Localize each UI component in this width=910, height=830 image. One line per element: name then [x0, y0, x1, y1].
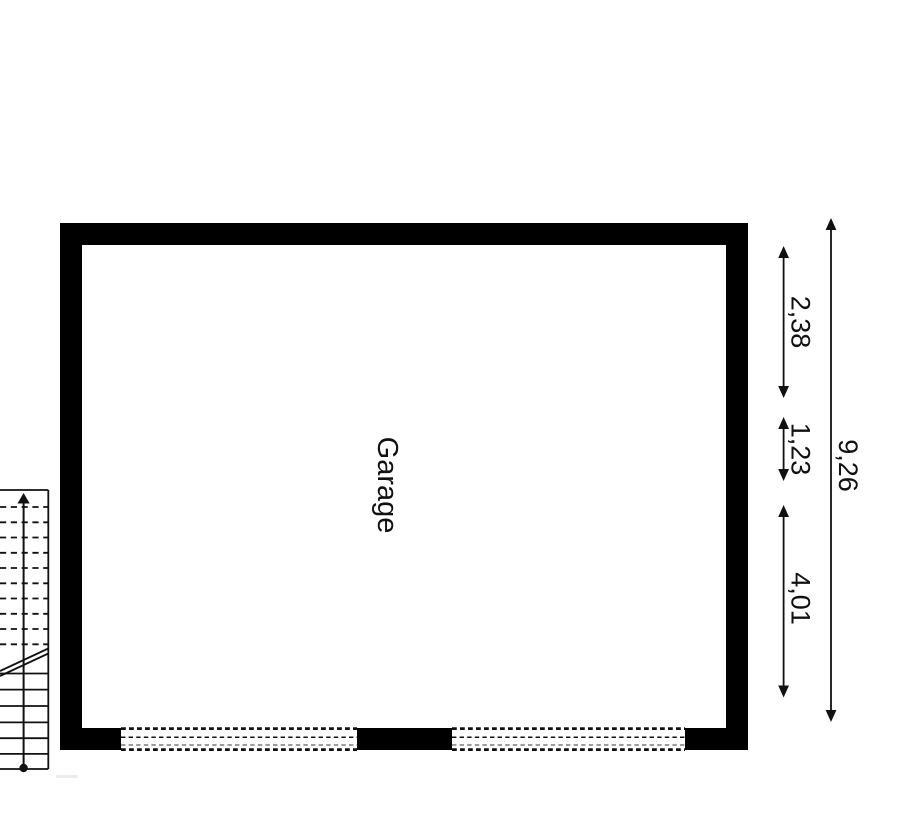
svg-text:4,01: 4,01: [786, 572, 816, 625]
svg-text:2,38: 2,38: [786, 296, 816, 349]
svg-text:Garage: Garage: [371, 437, 403, 534]
svg-text:9,26: 9,26: [833, 439, 863, 492]
svg-text:1,23: 1,23: [786, 423, 816, 476]
